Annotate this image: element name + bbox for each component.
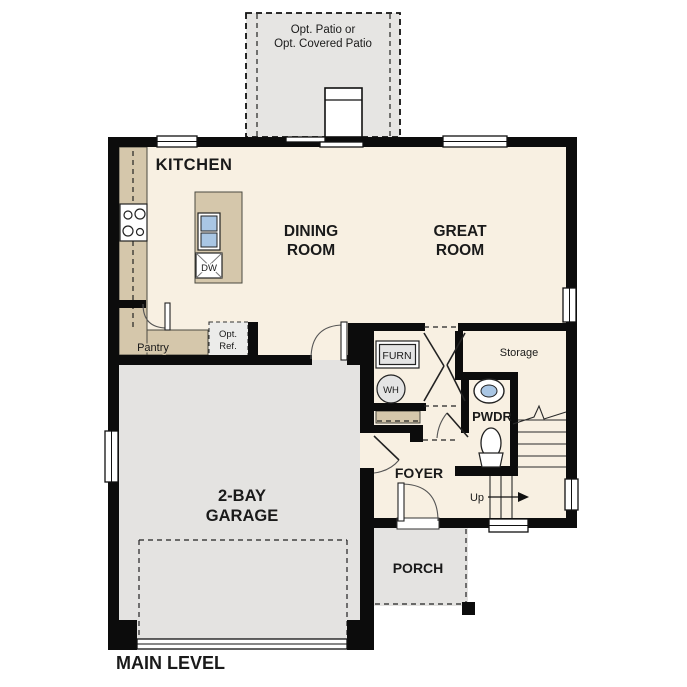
furnace-label: FURN <box>382 350 411 362</box>
island-sink <box>198 213 220 250</box>
fireplace-chimney <box>325 88 362 137</box>
dining-room-label-line2: ROOM <box>287 242 335 259</box>
floor-plan-page: Opt. Patio or Opt. Covered Patio <box>0 0 687 687</box>
floor-plan-drawing: Opt. Patio or Opt. Covered Patio <box>0 0 687 687</box>
window <box>105 431 118 482</box>
coat-closet-shelf <box>376 411 420 423</box>
great-room-label-line2: ROOM <box>436 242 484 259</box>
powder-label: PWDR <box>472 409 512 424</box>
garage-label-line1: 2-BAY <box>218 487 266 505</box>
furnace: FURN <box>376 341 419 368</box>
storage-label: Storage <box>500 347 539 359</box>
dishwasher: DW <box>196 253 222 278</box>
dining-room-label-line1: DINING <box>284 223 338 240</box>
pantry-label: Pantry <box>137 342 169 354</box>
water-heater: WH <box>377 375 405 403</box>
range-cooktop <box>120 204 147 241</box>
garage-door <box>137 639 347 649</box>
window <box>443 136 507 147</box>
opt-ref-label-line2: Ref. <box>219 341 236 352</box>
great-room-label-line1: GREAT <box>433 223 487 240</box>
window <box>157 136 197 147</box>
patio-label-line2: Opt. Covered Patio <box>274 38 372 50</box>
optional-patio: Opt. Patio or Opt. Covered Patio <box>246 13 400 137</box>
window <box>563 288 576 322</box>
kitchen-island: DW <box>195 192 242 283</box>
window <box>489 519 528 532</box>
optional-refrigerator: Opt. Ref. <box>209 322 248 358</box>
toilet <box>479 428 503 467</box>
foyer-label: FOYER <box>395 465 443 481</box>
garage-label-line2: GARAGE <box>206 507 278 525</box>
water-heater-label: WH <box>383 385 399 396</box>
dishwasher-label: DW <box>201 263 217 274</box>
porch-label: PORCH <box>393 560 444 576</box>
powder-sink <box>474 379 504 403</box>
porch-post <box>462 602 475 615</box>
opt-ref-label-line1: Opt. <box>219 329 237 340</box>
kitchen-label: KITCHEN <box>156 156 233 174</box>
window <box>565 479 578 510</box>
main-level-title: MAIN LEVEL <box>116 653 225 673</box>
patio-label-line1: Opt. Patio or <box>291 24 356 36</box>
up-label: Up <box>470 492 484 504</box>
